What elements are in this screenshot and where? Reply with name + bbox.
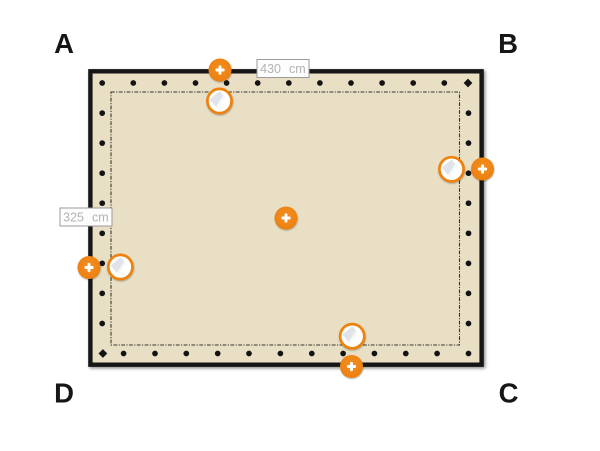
svg-text:cm: cm [289, 62, 306, 76]
svg-text:C: C [499, 378, 519, 409]
svg-text:D: D [54, 378, 74, 409]
svg-text:B: B [498, 28, 518, 59]
svg-text:cm: cm [92, 211, 109, 225]
svg-text:A: A [54, 28, 74, 59]
svg-text:325: 325 [63, 211, 84, 225]
svg-text:430: 430 [260, 62, 281, 76]
